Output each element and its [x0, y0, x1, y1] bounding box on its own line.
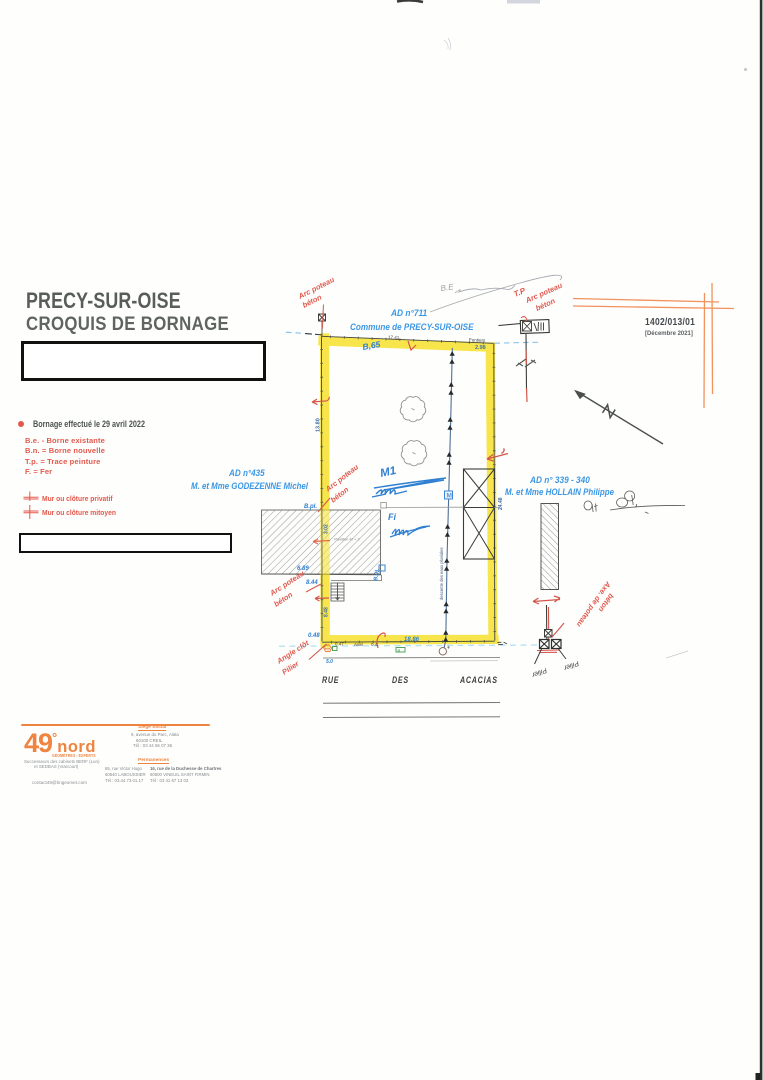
svg-text:Aval: Aval [354, 642, 363, 647]
svg-text:3.02: 3.02 [324, 524, 330, 534]
svg-text:0.48: 0.48 [308, 633, 320, 639]
svg-text:B,65: B,65 [362, 339, 382, 352]
svg-text:M: M [447, 493, 452, 500]
svg-text:17.41: 17.41 [388, 335, 400, 340]
svg-text:Pilier: Pilier [530, 666, 548, 678]
svg-text:Fi: Fi [388, 512, 396, 522]
svg-text:Fontiers: Fontiers [469, 337, 486, 343]
svg-text:B.pl.: B.pl. [304, 504, 317, 510]
svg-text:0.47: 0.47 [335, 642, 344, 647]
svg-text:M1: M1 [379, 465, 397, 480]
svg-text:13.80: 13.80 [316, 418, 322, 432]
svg-text:5.0: 5.0 [326, 659, 333, 665]
svg-text:18.86: 18.86 [404, 637, 420, 643]
svg-text:B.E: B.E [440, 282, 455, 293]
svg-text:24.48: 24.48 [498, 497, 504, 510]
svg-text:8.44: 8.44 [306, 580, 318, 586]
svg-text:8.48: 8.48 [324, 607, 330, 617]
svg-text:Pavillon M + 2: Pavillon M + 2 [334, 537, 360, 542]
svg-text:2.98: 2.98 [475, 345, 486, 351]
svg-text:B: B [398, 648, 401, 653]
svg-text:descente des eaux pluviales: descente des eaux pluviales [439, 547, 444, 600]
svg-text:Pilier: Pilier [562, 659, 580, 671]
